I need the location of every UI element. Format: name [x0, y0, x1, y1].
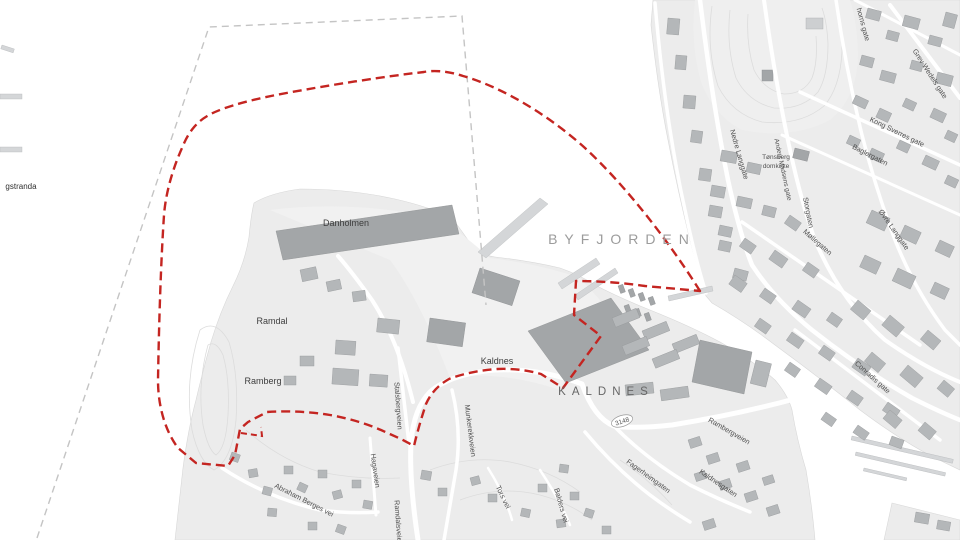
- house: [267, 508, 277, 517]
- building: [427, 318, 466, 347]
- house: [308, 522, 317, 530]
- label-byfjorden: BYFJORDEN: [548, 231, 696, 247]
- building: [667, 18, 680, 35]
- house: [420, 470, 431, 481]
- building: [352, 290, 366, 302]
- building: [675, 55, 687, 70]
- house: [570, 492, 579, 500]
- house: [559, 464, 569, 473]
- building: [369, 374, 388, 387]
- building: [698, 168, 712, 182]
- building: [284, 376, 296, 385]
- house: [438, 488, 447, 496]
- label-ramberg: Ramberg: [244, 376, 281, 386]
- building: [300, 356, 314, 366]
- house: [488, 494, 497, 502]
- label-gstranda-fragment: gstranda: [5, 182, 37, 191]
- label-danholmen: Danholmen: [323, 218, 369, 228]
- house: [352, 480, 361, 488]
- building: [377, 318, 400, 334]
- label-kaldnes-small: Kaldnes: [481, 356, 514, 366]
- map-canvas[interactable]: BYFJORDEN KALDNES Kaldnes Danholmen Ramd…: [0, 0, 960, 540]
- map-svg: BYFJORDEN KALDNES Kaldnes Danholmen Ramd…: [0, 0, 960, 540]
- building: [914, 512, 930, 524]
- building: [690, 130, 703, 143]
- house: [602, 526, 611, 534]
- pier-west-shore: [0, 94, 22, 99]
- building: [335, 340, 356, 355]
- label-kaldnes-area: KALDNES: [558, 386, 654, 398]
- building: [806, 18, 823, 29]
- building: [708, 205, 723, 218]
- building: [710, 185, 726, 198]
- label-ramdal: Ramdal: [256, 316, 287, 326]
- house: [284, 466, 293, 474]
- building: [332, 368, 359, 386]
- house: [538, 484, 547, 492]
- pier-west-shore: [0, 147, 22, 152]
- building: [683, 95, 696, 109]
- house: [520, 508, 530, 518]
- house: [248, 468, 258, 477]
- house: [318, 470, 327, 478]
- house: [363, 500, 373, 509]
- tower-building: [762, 70, 773, 81]
